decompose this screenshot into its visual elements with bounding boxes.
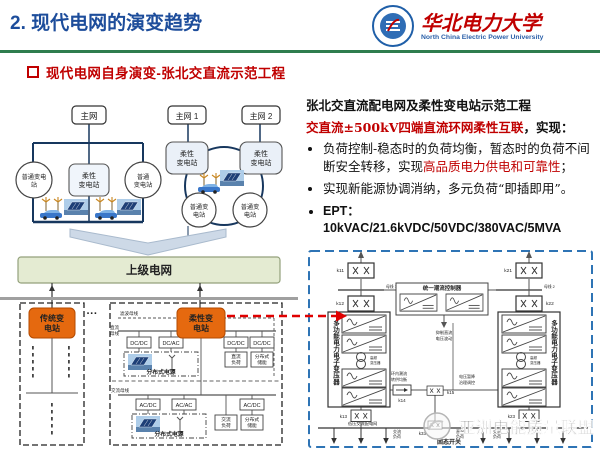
flexible-substation-box: [69, 164, 109, 196]
storage-label: 分布式: [255, 353, 270, 360]
converter-cell-icon: [342, 369, 386, 387]
breaker-k11-label: k11: [337, 268, 345, 274]
breaker-k23-label: k23: [508, 414, 516, 419]
flexible-substation-box: [240, 142, 282, 174]
traditional-substation-label: 传统变: [39, 313, 64, 323]
lv-ac-grid-label: 低压交流配电网: [348, 420, 377, 427]
converter-cell-icon: [502, 315, 546, 333]
switch-k14-label: k14: [398, 398, 406, 403]
upper-grid-label: 上级电网: [126, 263, 172, 277]
micro-note: 治理调控: [459, 379, 475, 385]
pet-right: 高频 变压器 多功能电力电子变压器: [498, 312, 560, 407]
normal-substation-label2: 站: [31, 181, 37, 189]
converter-cell-icon: [342, 388, 386, 406]
diagram-layer: 主网 普通变电 站 柔性 变电站 普通 变电站: [0, 0, 600, 450]
dcdc-label: DC/DC: [130, 341, 147, 347]
hf-transformer-label2: 变压器: [370, 360, 381, 365]
normal-substation-label: 普通变: [241, 203, 260, 211]
breaker-k15-icon: [427, 386, 443, 395]
antenna-icon: [169, 355, 175, 370]
wind-turbine-icon: [54, 197, 62, 211]
converter-cell-icon: [342, 315, 386, 333]
flexible-substation-label2: 变电站: [251, 158, 272, 167]
grid-evolution-left-group: 主网 普通变电 站 柔性 变电站 普通 变电站: [16, 106, 161, 222]
electric-car-icon: [198, 184, 220, 194]
normal-substation-label2: 变电站: [134, 181, 153, 189]
distributed-generation-label: 分布式电源: [147, 368, 176, 376]
storage-label: 分布式: [245, 416, 260, 423]
renewables-icons: [198, 170, 244, 194]
wind-turbine-icon: [108, 197, 116, 211]
main-grid2-label: 主网 2: [250, 111, 273, 121]
breaker-k22-icon: [516, 296, 542, 311]
dcdc-label: DC/DC: [227, 341, 244, 347]
breaker-k11-icon: [348, 263, 374, 278]
converter-cell-icon: [400, 294, 437, 311]
micro-note: 抑制直流: [436, 329, 454, 336]
converter-cell-icon: [502, 388, 546, 406]
bus2-label: 母线 2: [544, 284, 555, 289]
ellipsis-dots: [32, 346, 34, 378]
dcac-label: DC/AC: [162, 341, 179, 347]
ellipsis-dots: [51, 403, 53, 435]
converter-cell-icon: [502, 335, 546, 353]
pet-left: 多功能电力电子变压器 高频 变压器: [328, 312, 390, 407]
flexible-substation-orange-box: [177, 308, 225, 338]
traditional-substation-label2: 电站: [44, 323, 60, 333]
hf-transformer-label: 高频: [370, 355, 378, 360]
flexible-substation-label2: 变电站: [79, 180, 100, 189]
normal-substation-label2: 电站: [244, 211, 256, 219]
flexible-substation-orange-label2: 电站: [193, 323, 209, 333]
storage-label2: 储能: [257, 359, 267, 366]
ac-load-label2: 负荷: [221, 422, 231, 429]
renewables-icons: [40, 197, 141, 220]
flexible-substation-label: 柔性: [180, 149, 194, 158]
distributed-generation-label: 分布式电源: [155, 430, 184, 438]
micro-note: 电压波动: [436, 335, 453, 342]
electric-car-icon: [40, 210, 62, 220]
flexible-substation-label: 柔性: [254, 149, 268, 158]
flexible-substation-group: 滤波母线 直流 母线 DC/DC DC/AC DC/DC DC/DC 分布式电源: [110, 303, 282, 445]
ac-bus-label: 交流母线: [111, 387, 129, 394]
breaker-k22-label: k22: [546, 301, 554, 307]
converter-cell-icon: [342, 335, 386, 353]
grid-evolution-ring-group: 主网 1 主网 2 柔性 变电站 柔性 变电站 普通变 电站 普通变 电站: [166, 106, 282, 243]
breaker-k12-icon: [348, 296, 374, 311]
main-grid-label: 主网: [80, 111, 97, 121]
normal-substation-label: 普通: [137, 173, 149, 181]
dc-bus-label2: 母线: [110, 330, 119, 337]
connector-lines: [148, 395, 252, 415]
wind-turbine-icon: [42, 197, 50, 211]
circuit-diagram: k11 k12 k21 k22 母线 1 母线 2 统一潮流控制器 抑制直流 电…: [309, 251, 595, 447]
breaker-k21-icon: [516, 263, 542, 278]
micro-note: 电压暂降: [459, 373, 475, 379]
down-arrow: [70, 229, 226, 255]
solar-panel-icon: [220, 170, 244, 186]
ellipsis-label: ···: [87, 308, 98, 320]
solar-panel-icon: [128, 354, 152, 370]
traditional-substation-group: 传统变 电站: [20, 303, 84, 445]
watermark-text: 亚洲电能质量联盟: [459, 418, 595, 437]
acac-label: AC/AC: [176, 403, 193, 409]
breaker-k13-icon: [351, 410, 371, 422]
ellipsis-dots: [68, 346, 70, 378]
normal-substation-label: 普通变: [190, 203, 209, 211]
traditional-substation-box: [29, 308, 75, 338]
solar-panel-icon: [136, 416, 160, 432]
normal-substation-label2: 电站: [193, 211, 205, 219]
breaker-k12-label: k12: [336, 301, 344, 307]
acdc-label: AC/DC: [243, 403, 260, 409]
dc-bus-label: 直流: [110, 324, 119, 331]
slide-root: 2. 现代电网的演变趋势 华北电力大学 North China Electric…: [0, 0, 600, 450]
flexible-substation-label: 柔性: [82, 171, 96, 180]
wind-turbine-icon: [96, 197, 104, 211]
storage-label2: 储能: [247, 422, 257, 429]
micro-note: 转供均衡: [391, 376, 407, 382]
converter-cell-icon: [502, 369, 546, 387]
dc-load-label2: 负荷: [231, 359, 241, 366]
antenna-icon: [177, 417, 183, 432]
upfc-label: 统一潮流控制器: [423, 284, 462, 292]
filter-bus-label: 滤波母线: [120, 310, 138, 317]
bus1-label: 母线 1: [386, 284, 397, 289]
watermark-logo-icon: [424, 413, 450, 439]
breaker-k15-label: k15: [447, 390, 455, 395]
feeder-connectors: [0, 283, 298, 309]
flexible-substation-orange-label: 柔性变: [188, 313, 213, 323]
micro-note: 负荷: [393, 433, 401, 439]
acdc-label: AC/DC: [139, 403, 156, 409]
main-grid1-label: 主网 1: [176, 111, 199, 121]
breaker-k21-label: k21: [504, 268, 512, 274]
electric-car-icon: [95, 210, 117, 220]
ac-load-label: 交流: [221, 416, 231, 423]
dc-load-label: 直流: [231, 353, 241, 360]
converter-cell-icon: [446, 294, 483, 311]
dcdc-label: DC/DC: [253, 341, 270, 347]
solar-panel-icon: [64, 199, 88, 215]
micro-note: 环内潮流: [391, 370, 407, 376]
flexible-substation-label2: 变电站: [177, 158, 198, 167]
hf-transformer-label2: 变压器: [530, 360, 541, 365]
breaker-k13-label: k13: [340, 414, 348, 419]
flexible-substation-box: [166, 142, 208, 174]
hf-transformer-label: 高频: [530, 355, 538, 360]
solar-panel-icon: [117, 199, 141, 215]
normal-substation-label: 普通变电: [22, 173, 47, 181]
